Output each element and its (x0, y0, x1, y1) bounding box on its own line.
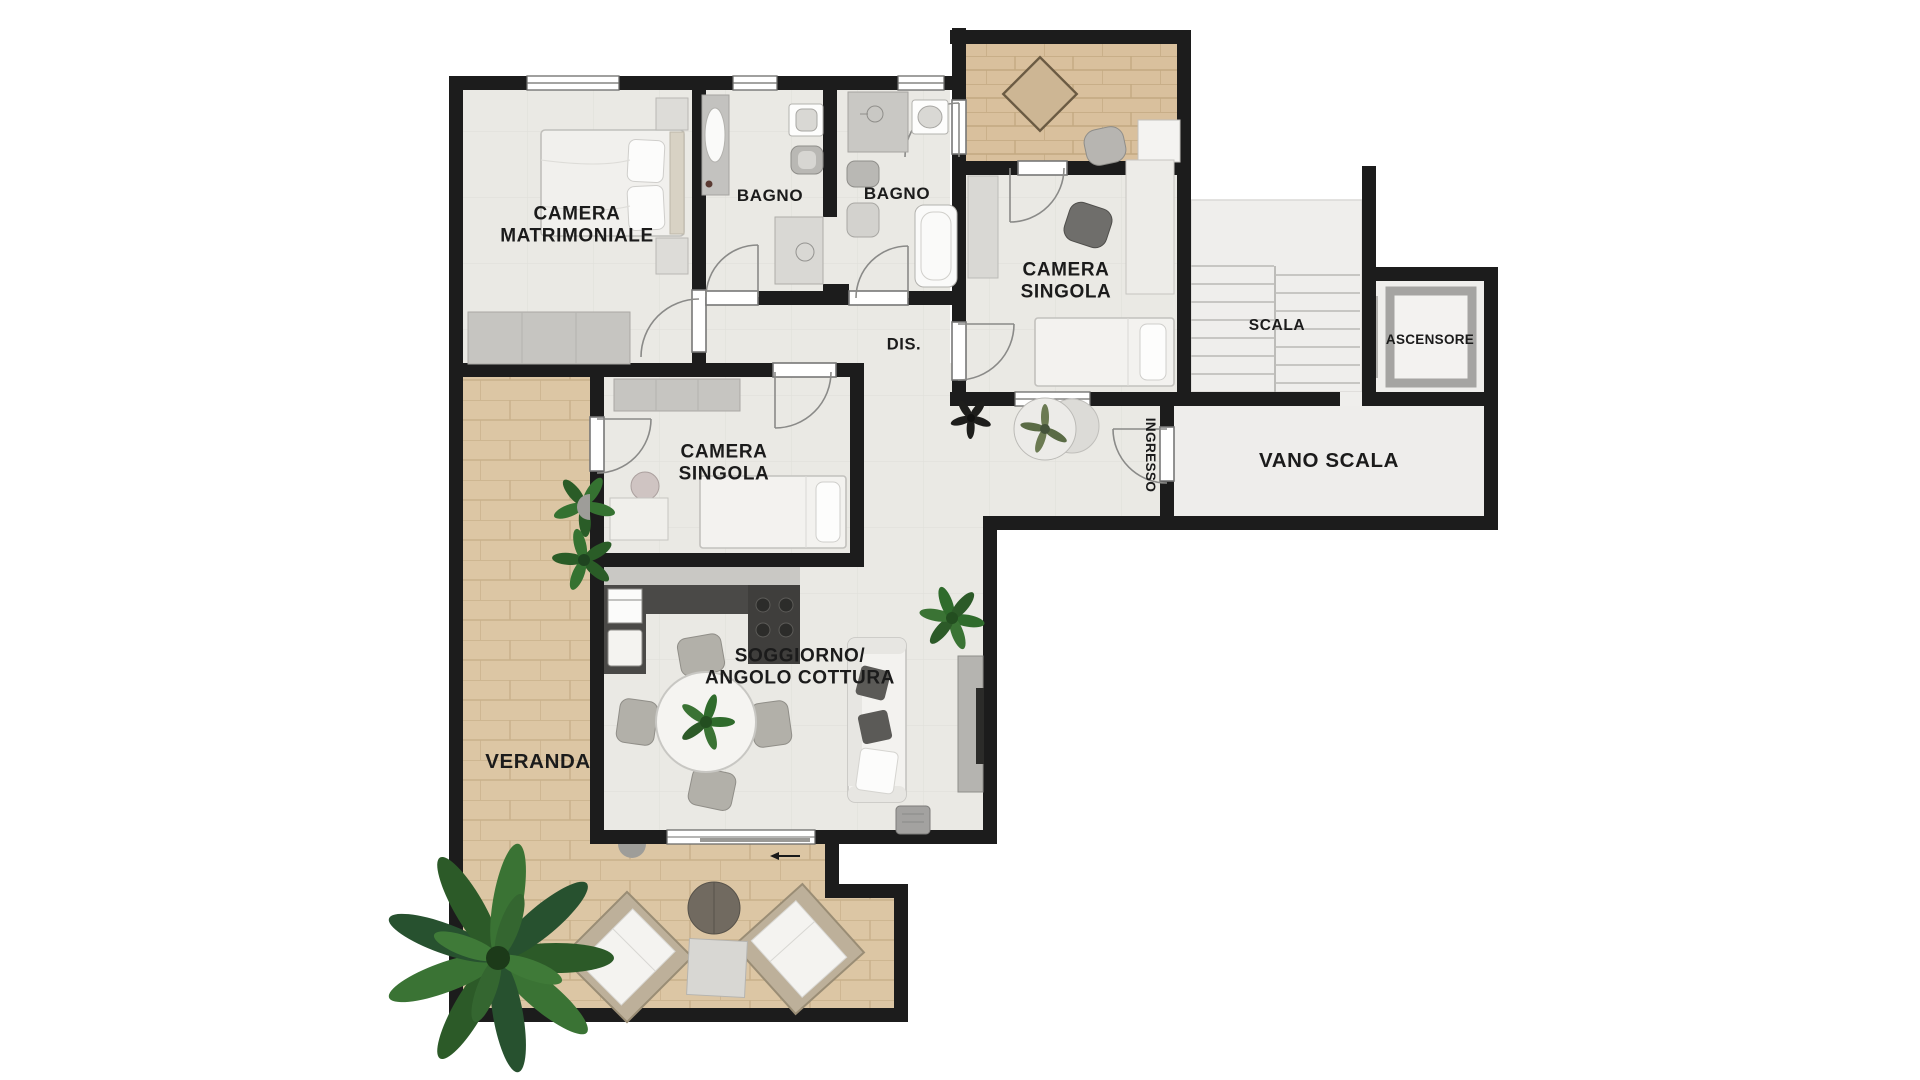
pillow (816, 482, 840, 542)
room-label-bagno-2: BAGNO (864, 184, 930, 204)
room-label-scala: SCALA (1249, 317, 1305, 335)
window-bagno-2 (898, 76, 944, 90)
pillow (627, 139, 665, 183)
room-label-vano-scala: VANO SCALA (1259, 449, 1399, 473)
floor-unit (896, 806, 930, 834)
fridge (608, 589, 642, 623)
sink-basin (918, 106, 942, 128)
chair (631, 472, 659, 500)
floor-scala (1191, 200, 1362, 392)
dining-chair (615, 698, 659, 747)
wardrobe (614, 379, 740, 411)
desk (1126, 160, 1174, 294)
sofa-pillow (857, 709, 893, 745)
room-label-dis: DIS. (887, 335, 922, 354)
shower (848, 92, 908, 152)
room-label-camera-singola-upper: CAMERA SINGOLA (1021, 260, 1112, 305)
room-label-ingresso: INGRESSO (1142, 418, 1158, 492)
room-label-soggiorno: SOGGIORNO/ ANGOLO COTTURA (705, 646, 895, 691)
kitchen-sink (608, 630, 642, 666)
window-camera-matrimoniale (527, 76, 619, 90)
wash-basin (705, 108, 725, 162)
pillow (1140, 324, 1166, 380)
outdoor-table (1138, 120, 1180, 162)
sink-basin (796, 109, 817, 131)
burner-icon (779, 598, 793, 612)
bed-headboard (670, 132, 684, 234)
burner-icon (779, 623, 793, 637)
wardrobe (468, 312, 630, 364)
nightstand (656, 238, 688, 274)
room-label-ascensore: ASCENSORE (1386, 332, 1474, 348)
burner-icon (756, 623, 770, 637)
shower (775, 217, 823, 284)
room-label-veranda: VERANDA (485, 750, 591, 774)
toilet (847, 203, 879, 237)
room-label-bagno-1: BAGNO (737, 186, 803, 206)
window-bagno-1 (733, 76, 777, 90)
sofa-throw (855, 748, 898, 795)
desk (610, 498, 668, 540)
kitchen-backsplash (604, 567, 800, 585)
floor-plan-canvas: CAMERA MATRIMONIALE BAGNO BAGNO CAMERA S… (0, 0, 1920, 1080)
wardrobe (968, 176, 998, 278)
room-label-camera-matrimoniale: CAMERA MATRIMONIALE (500, 204, 654, 249)
room-label-camera-singola-lower: CAMERA SINGOLA (679, 442, 770, 487)
tv-icon (976, 688, 984, 764)
burner-icon (756, 598, 770, 612)
toilet-seat (798, 151, 816, 169)
square-table (687, 939, 748, 998)
faucet-icon (706, 181, 713, 188)
floor-plan-drawing (0, 0, 1920, 1080)
nightstand (656, 98, 688, 130)
